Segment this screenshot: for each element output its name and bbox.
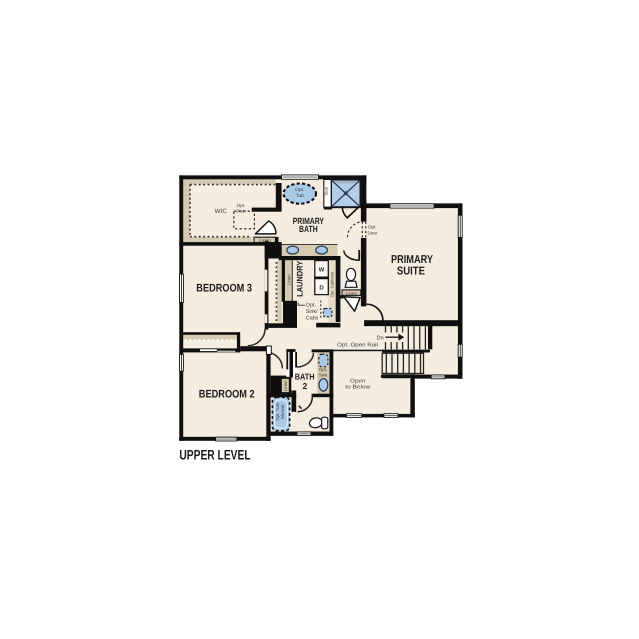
- svg-text:to Below: to Below: [345, 384, 370, 390]
- svg-text:Opt. Open Rail: Opt. Open Rail: [337, 342, 378, 349]
- svg-text:UPPER LEVEL: UPPER LEVEL: [179, 448, 250, 463]
- svg-text:Linen: Linen: [346, 291, 358, 296]
- svg-text:Door: Door: [368, 230, 378, 235]
- svg-text:BEDROOM 3: BEDROOM 3: [196, 282, 252, 294]
- svg-text:Opt.: Opt.: [368, 224, 377, 229]
- svg-text:LAUNDRY: LAUNDRY: [296, 260, 305, 297]
- svg-text:Opt.: Opt.: [237, 203, 246, 208]
- svg-text:Opt. Cabinets: Opt. Cabinets: [330, 272, 335, 298]
- svg-text:Linen: Linen: [283, 380, 288, 391]
- svg-text:D: D: [319, 285, 324, 292]
- svg-text:Sink/: Sink/: [306, 309, 318, 315]
- svg-text:BEDROOM 2: BEDROOM 2: [199, 388, 255, 400]
- svg-text:Seat: Seat: [324, 186, 329, 195]
- svg-text:2: 2: [303, 381, 308, 391]
- svg-text:Sink: Sink: [319, 372, 328, 377]
- svg-text:Linen: Linen: [287, 274, 292, 285]
- svg-text:Linen: Linen: [259, 238, 271, 244]
- svg-text:Door: Door: [236, 209, 246, 214]
- svg-text:Tub: Tub: [296, 193, 304, 199]
- svg-text:Dn: Dn: [377, 336, 384, 342]
- svg-text:Opt.: Opt.: [295, 187, 304, 193]
- svg-text:Open: Open: [350, 378, 366, 384]
- svg-text:W: W: [319, 267, 325, 274]
- svg-text:BATH: BATH: [299, 224, 318, 234]
- svg-text:Shower: Shower: [280, 404, 285, 419]
- svg-text:Opt.: Opt.: [306, 303, 316, 309]
- svg-text:Cabs: Cabs: [306, 315, 319, 321]
- svg-text:PRIMARY: PRIMARY: [391, 254, 433, 266]
- svg-text:WIC: WIC: [215, 208, 228, 215]
- svg-text:SUITE: SUITE: [397, 266, 425, 278]
